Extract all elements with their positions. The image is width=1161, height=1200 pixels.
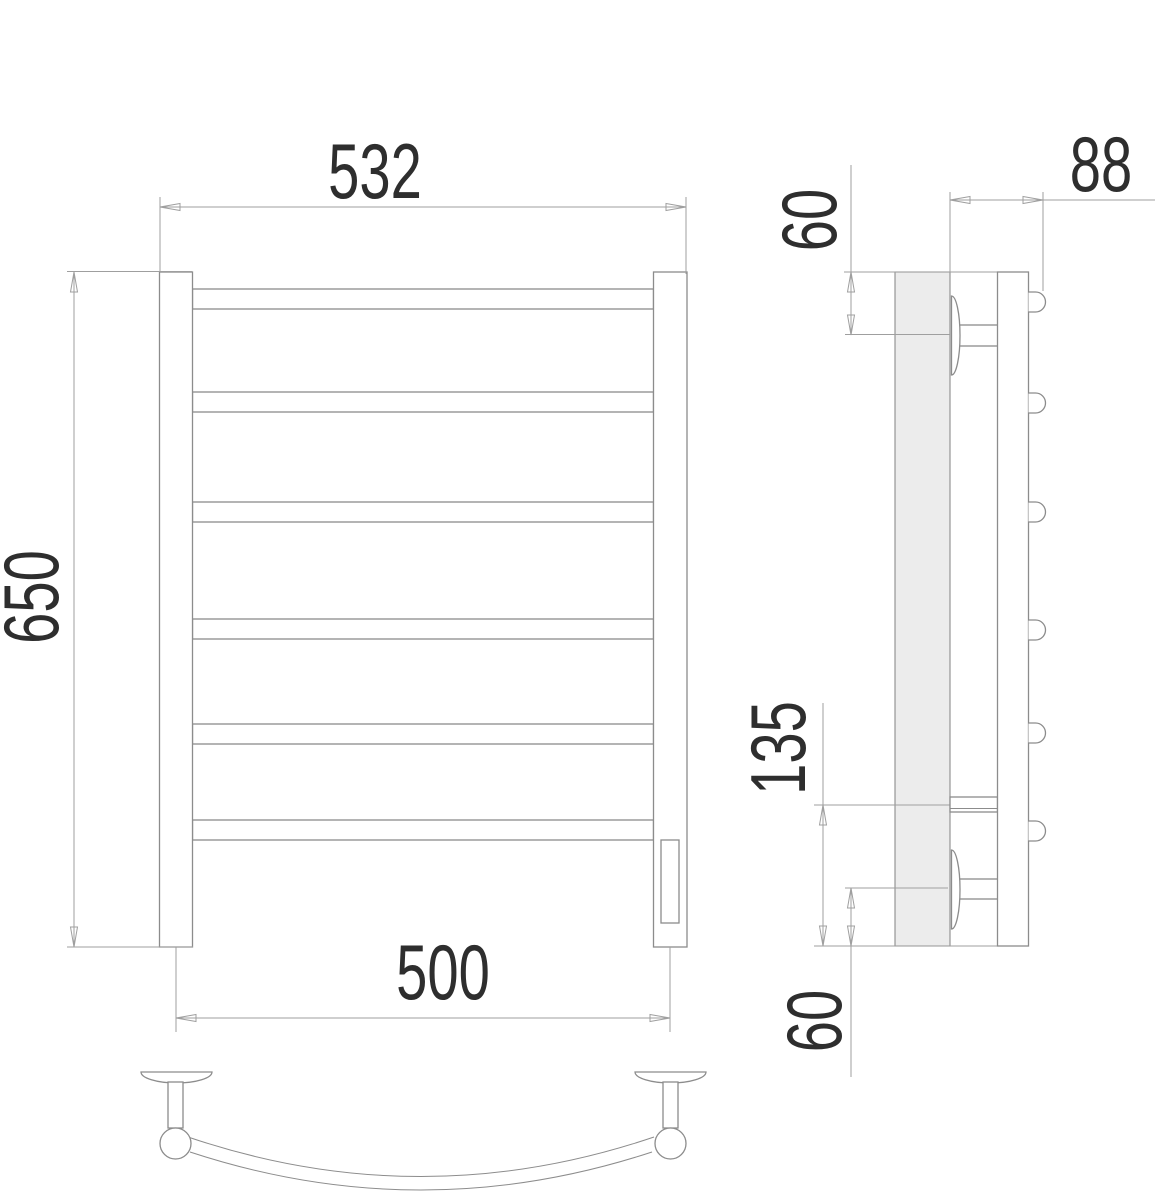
rail-3 bbox=[193, 502, 654, 522]
rail-6 bbox=[193, 820, 654, 840]
dim-label-88: 88 bbox=[1070, 121, 1132, 208]
bottom-view bbox=[141, 1072, 706, 1190]
lower-bracket-arm bbox=[959, 879, 999, 899]
rail-4 bbox=[193, 619, 654, 639]
rail-end-6 bbox=[1029, 821, 1046, 841]
dimension-bottom-axis-width: 500 bbox=[176, 929, 670, 1032]
dim-label-60-bottom: 60 bbox=[771, 990, 858, 1052]
dimension-front-width: 532 bbox=[160, 128, 686, 274]
rail-5 bbox=[193, 724, 654, 744]
front-view bbox=[160, 272, 688, 947]
dim-label-500: 500 bbox=[396, 929, 490, 1016]
dimension-side-connection-height: 135 bbox=[735, 701, 827, 946]
dimension-side-top-offset: 60 bbox=[766, 165, 855, 335]
right-post-plan bbox=[655, 1128, 686, 1159]
rail-end-3 bbox=[1029, 502, 1046, 522]
dim-label-650: 650 bbox=[0, 550, 75, 644]
rail-1 bbox=[193, 289, 654, 309]
rail-end-4 bbox=[1029, 620, 1046, 640]
technical-drawing-canvas: 532 650 500 bbox=[0, 0, 1161, 1200]
side-view bbox=[814, 272, 1046, 946]
dimension-side-bottom-offset: 60 bbox=[771, 888, 858, 1077]
rail-2 bbox=[193, 392, 654, 412]
dim-label-60-top: 60 bbox=[766, 189, 853, 251]
connection-pipe bbox=[950, 797, 998, 812]
dimension-side-depth: 88 bbox=[950, 121, 1155, 291]
rail-end-1 bbox=[1029, 292, 1046, 312]
left-stem-plan bbox=[168, 1082, 183, 1128]
upper-bracket-arm bbox=[959, 325, 999, 346]
upper-bracket-flange bbox=[952, 296, 961, 375]
side-post bbox=[998, 272, 1029, 946]
towel-rail-drawing: 532 650 500 bbox=[0, 0, 1161, 1200]
dim-label-532: 532 bbox=[328, 128, 422, 215]
wall-section bbox=[895, 272, 950, 946]
heating-element-box bbox=[661, 840, 679, 923]
left-post-plan bbox=[160, 1128, 191, 1159]
rail-end-2 bbox=[1029, 393, 1046, 413]
right-stem-plan bbox=[663, 1082, 678, 1128]
rail-end-5 bbox=[1029, 723, 1046, 743]
lower-bracket-flange bbox=[952, 850, 961, 929]
left-post bbox=[160, 272, 193, 947]
dim-label-135: 135 bbox=[735, 701, 822, 795]
